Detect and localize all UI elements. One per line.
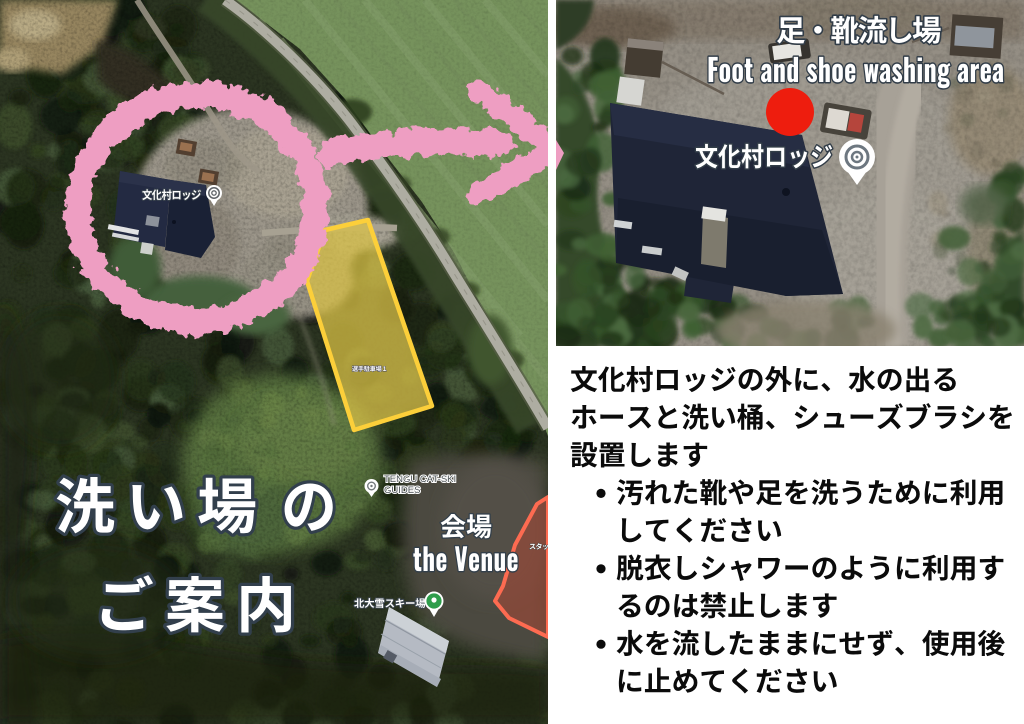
svg-text:GUIDES: GUIDES <box>384 485 420 496</box>
svg-text:TENGU CAT-SKI: TENGU CAT-SKI <box>384 474 456 485</box>
